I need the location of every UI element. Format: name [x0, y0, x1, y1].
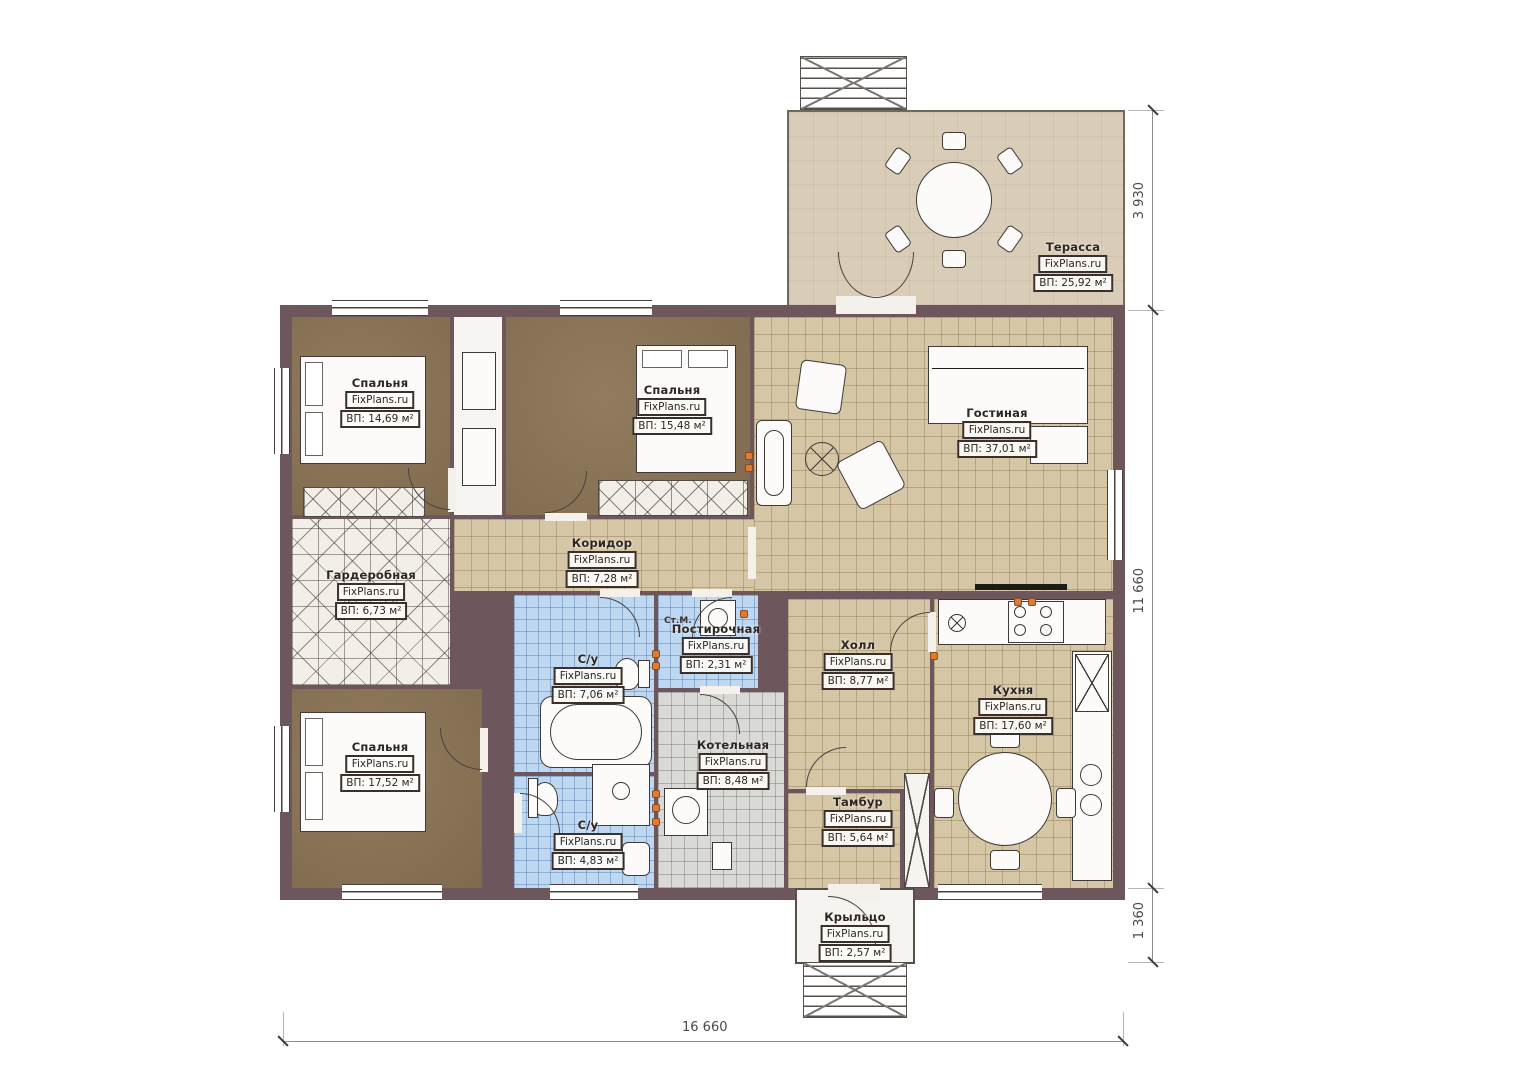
- dim-value-porch-depth: 1 360: [1132, 902, 1147, 939]
- bedroom1-closet: [303, 487, 425, 517]
- socket-marker: [930, 652, 938, 660]
- dim-value-terrace-depth: 3 930: [1132, 182, 1147, 219]
- door-opening: [692, 589, 732, 597]
- dim-value-house-depth: 11 660: [1132, 568, 1147, 614]
- watermark: FixPlans.ru: [346, 755, 415, 773]
- watermark: FixPlans.ru: [682, 637, 751, 655]
- watermark: FixPlans.ru: [824, 653, 893, 671]
- room-name: Крыльцо: [824, 910, 886, 924]
- bathtub-inner: [550, 704, 642, 760]
- room-area: ВП: 14,69 м²: [340, 410, 420, 428]
- socket-marker: [745, 464, 753, 472]
- burner: [1014, 606, 1026, 618]
- watermark: FixPlans.ru: [1039, 255, 1108, 273]
- sink-symbol: [948, 614, 966, 632]
- room-name: Постирочная: [672, 622, 760, 636]
- window: [274, 368, 290, 454]
- watermark: FixPlans.ru: [568, 551, 637, 569]
- room-area: ВП: 6,73 м²: [335, 602, 408, 620]
- corridor-opening: [748, 527, 756, 579]
- pillow: [305, 412, 323, 456]
- boiler-dial: [672, 796, 700, 824]
- door-opening: [700, 686, 740, 694]
- dimension-line-horizontal: [283, 1041, 1123, 1042]
- watermark: FixPlans.ru: [337, 583, 406, 601]
- bedroom2-closet: [598, 480, 748, 516]
- watermark: FixPlans.ru: [963, 421, 1032, 439]
- room-label-laundry: Постирочная FixPlans.ru ВП: 2,31 м²: [672, 622, 760, 674]
- pillow: [642, 350, 682, 368]
- room-name: С/у: [578, 818, 599, 832]
- watermark: FixPlans.ru: [824, 810, 893, 828]
- room-name: Холл: [841, 638, 875, 652]
- room-area: ВП: 7,28 м²: [566, 570, 639, 588]
- dimension-line-vertical: [1152, 110, 1153, 962]
- floor-plan: Ст.М. Терасса FixPlans.ru ВП: 25,92 м² С…: [0, 0, 1528, 1080]
- watermark: FixPlans.ru: [821, 925, 890, 943]
- fridge: [1075, 654, 1109, 712]
- room-name: С/у: [578, 652, 599, 666]
- window: [560, 300, 652, 316]
- chair: [1056, 788, 1076, 818]
- witness-line: [1128, 962, 1164, 963]
- boiler-panel: [712, 842, 732, 870]
- witness-line: [1128, 888, 1164, 889]
- room-name: Спальня: [352, 740, 409, 754]
- wardrobe-symbol: [462, 428, 496, 486]
- chair: [934, 788, 954, 818]
- room-name: Спальня: [644, 383, 701, 397]
- socket-marker: [652, 662, 660, 670]
- pillow: [305, 362, 323, 406]
- door-opening: [545, 513, 587, 521]
- sofa-chaise: [1030, 426, 1088, 464]
- terrace-door-opening: [836, 296, 916, 314]
- socket-marker: [1028, 598, 1036, 606]
- room-label-living: Гостиная FixPlans.ru ВП: 37,01 м²: [957, 406, 1037, 458]
- burner: [1040, 606, 1052, 618]
- door-opening: [600, 589, 640, 597]
- pillow: [688, 350, 728, 368]
- window: [550, 884, 638, 900]
- shower-head: [612, 782, 630, 800]
- watermark: FixPlans.ru: [979, 698, 1048, 716]
- watermark: FixPlans.ru: [554, 667, 623, 685]
- socket-marker: [652, 650, 660, 658]
- watermark: FixPlans.ru: [346, 391, 415, 409]
- room-area: ВП: 5,64 м²: [822, 829, 895, 847]
- wardrobe-symbol: [462, 352, 496, 410]
- room-label-terrace: Терасса FixPlans.ru ВП: 25,92 м²: [1033, 240, 1113, 292]
- room-label-wardrobe: Гардеробная FixPlans.ru ВП: 6,73 м²: [326, 568, 416, 620]
- kitchen-table: [958, 752, 1052, 846]
- cabinet-inner: [764, 430, 784, 496]
- door-opening: [806, 787, 846, 795]
- sofa-back-line: [932, 368, 1084, 369]
- pillow: [305, 772, 323, 820]
- dim-value-house-width: 16 660: [682, 1020, 728, 1035]
- room-name: Терасса: [1046, 240, 1100, 254]
- room-area: ВП: 8,77 м²: [822, 672, 895, 690]
- room-area: ВП: 17,60 м²: [973, 717, 1053, 735]
- room-label-porch: Крыльцо FixPlans.ru ВП: 2,57 м²: [819, 910, 892, 962]
- window: [332, 300, 428, 316]
- room-area: ВП: 7,06 м²: [552, 686, 625, 704]
- watermark: FixPlans.ru: [638, 398, 707, 416]
- window: [938, 884, 1042, 900]
- room-label-corridor: Коридор FixPlans.ru ВП: 7,28 м²: [566, 536, 639, 588]
- room-area: ВП: 4,83 м²: [552, 852, 625, 870]
- window: [274, 726, 290, 812]
- terrace-table: [916, 162, 992, 238]
- sink-bowl: [1080, 764, 1102, 786]
- room-area: ВП: 2,31 м²: [680, 656, 753, 674]
- room-label-kitchen: Кухня FixPlans.ru ВП: 17,60 м²: [973, 683, 1053, 735]
- window: [1107, 470, 1123, 560]
- chair: [990, 850, 1020, 870]
- room-area: ВП: 15,48 м²: [632, 417, 712, 435]
- porch-stairs: [803, 962, 907, 1018]
- witness-line: [1128, 310, 1164, 311]
- room-area: ВП: 37,01 м²: [957, 440, 1037, 458]
- tv: [975, 584, 1067, 590]
- socket-marker: [740, 610, 748, 618]
- room-label-bathroom-1: С/у FixPlans.ru ВП: 7,06 м²: [552, 652, 625, 704]
- room-name: Тамбур: [833, 795, 883, 809]
- room-area: ВП: 2,57 м²: [819, 944, 892, 962]
- room-label-bedroom-2: Спальня FixPlans.ru ВП: 15,48 м²: [632, 383, 712, 435]
- room-name: Гостиная: [966, 406, 1027, 420]
- socket-marker: [745, 452, 753, 460]
- witness-line: [1128, 110, 1164, 111]
- room-name: Гардеробная: [326, 568, 416, 582]
- room-label-bedroom-3: Спальня FixPlans.ru ВП: 17,52 м²: [340, 740, 420, 792]
- pillow: [305, 718, 323, 766]
- room-label-vestibule: Тамбур FixPlans.ru ВП: 5,64 м²: [822, 795, 895, 847]
- washbasin: [622, 842, 650, 876]
- room-area: ВП: 25,92 м²: [1033, 274, 1113, 292]
- watermark: FixPlans.ru: [554, 833, 623, 851]
- chair: [942, 250, 966, 268]
- sink-bowl: [1080, 794, 1102, 816]
- room-area: ВП: 17,52 м²: [340, 774, 420, 792]
- socket-marker: [652, 790, 660, 798]
- room-area: ВП: 8,48 м²: [697, 772, 770, 790]
- room-name: Коридор: [572, 536, 632, 550]
- window: [342, 884, 442, 900]
- terrace-stairs: [800, 56, 907, 110]
- socket-marker: [652, 804, 660, 812]
- watermark: FixPlans.ru: [699, 753, 768, 771]
- room-name: Кухня: [993, 683, 1034, 697]
- burner: [1040, 624, 1052, 636]
- round-side-table: [805, 442, 839, 476]
- burner: [1014, 624, 1026, 636]
- toilet-tank: [638, 660, 650, 688]
- room-name: Спальня: [352, 376, 409, 390]
- socket-marker: [1014, 598, 1022, 606]
- room-label-boiler: Котельная FixPlans.ru ВП: 8,48 м²: [697, 738, 770, 790]
- chair: [942, 132, 966, 150]
- socket-marker: [652, 818, 660, 826]
- room-label-bedroom-1: Спальня FixPlans.ru ВП: 14,69 м²: [340, 376, 420, 428]
- room-label-hall: Холл FixPlans.ru ВП: 8,77 м²: [822, 638, 895, 690]
- armchair: [795, 359, 848, 415]
- room-label-bathroom-2: С/у FixPlans.ru ВП: 4,83 м²: [552, 818, 625, 870]
- hall-closet: [904, 773, 930, 888]
- room-name: Котельная: [697, 738, 769, 752]
